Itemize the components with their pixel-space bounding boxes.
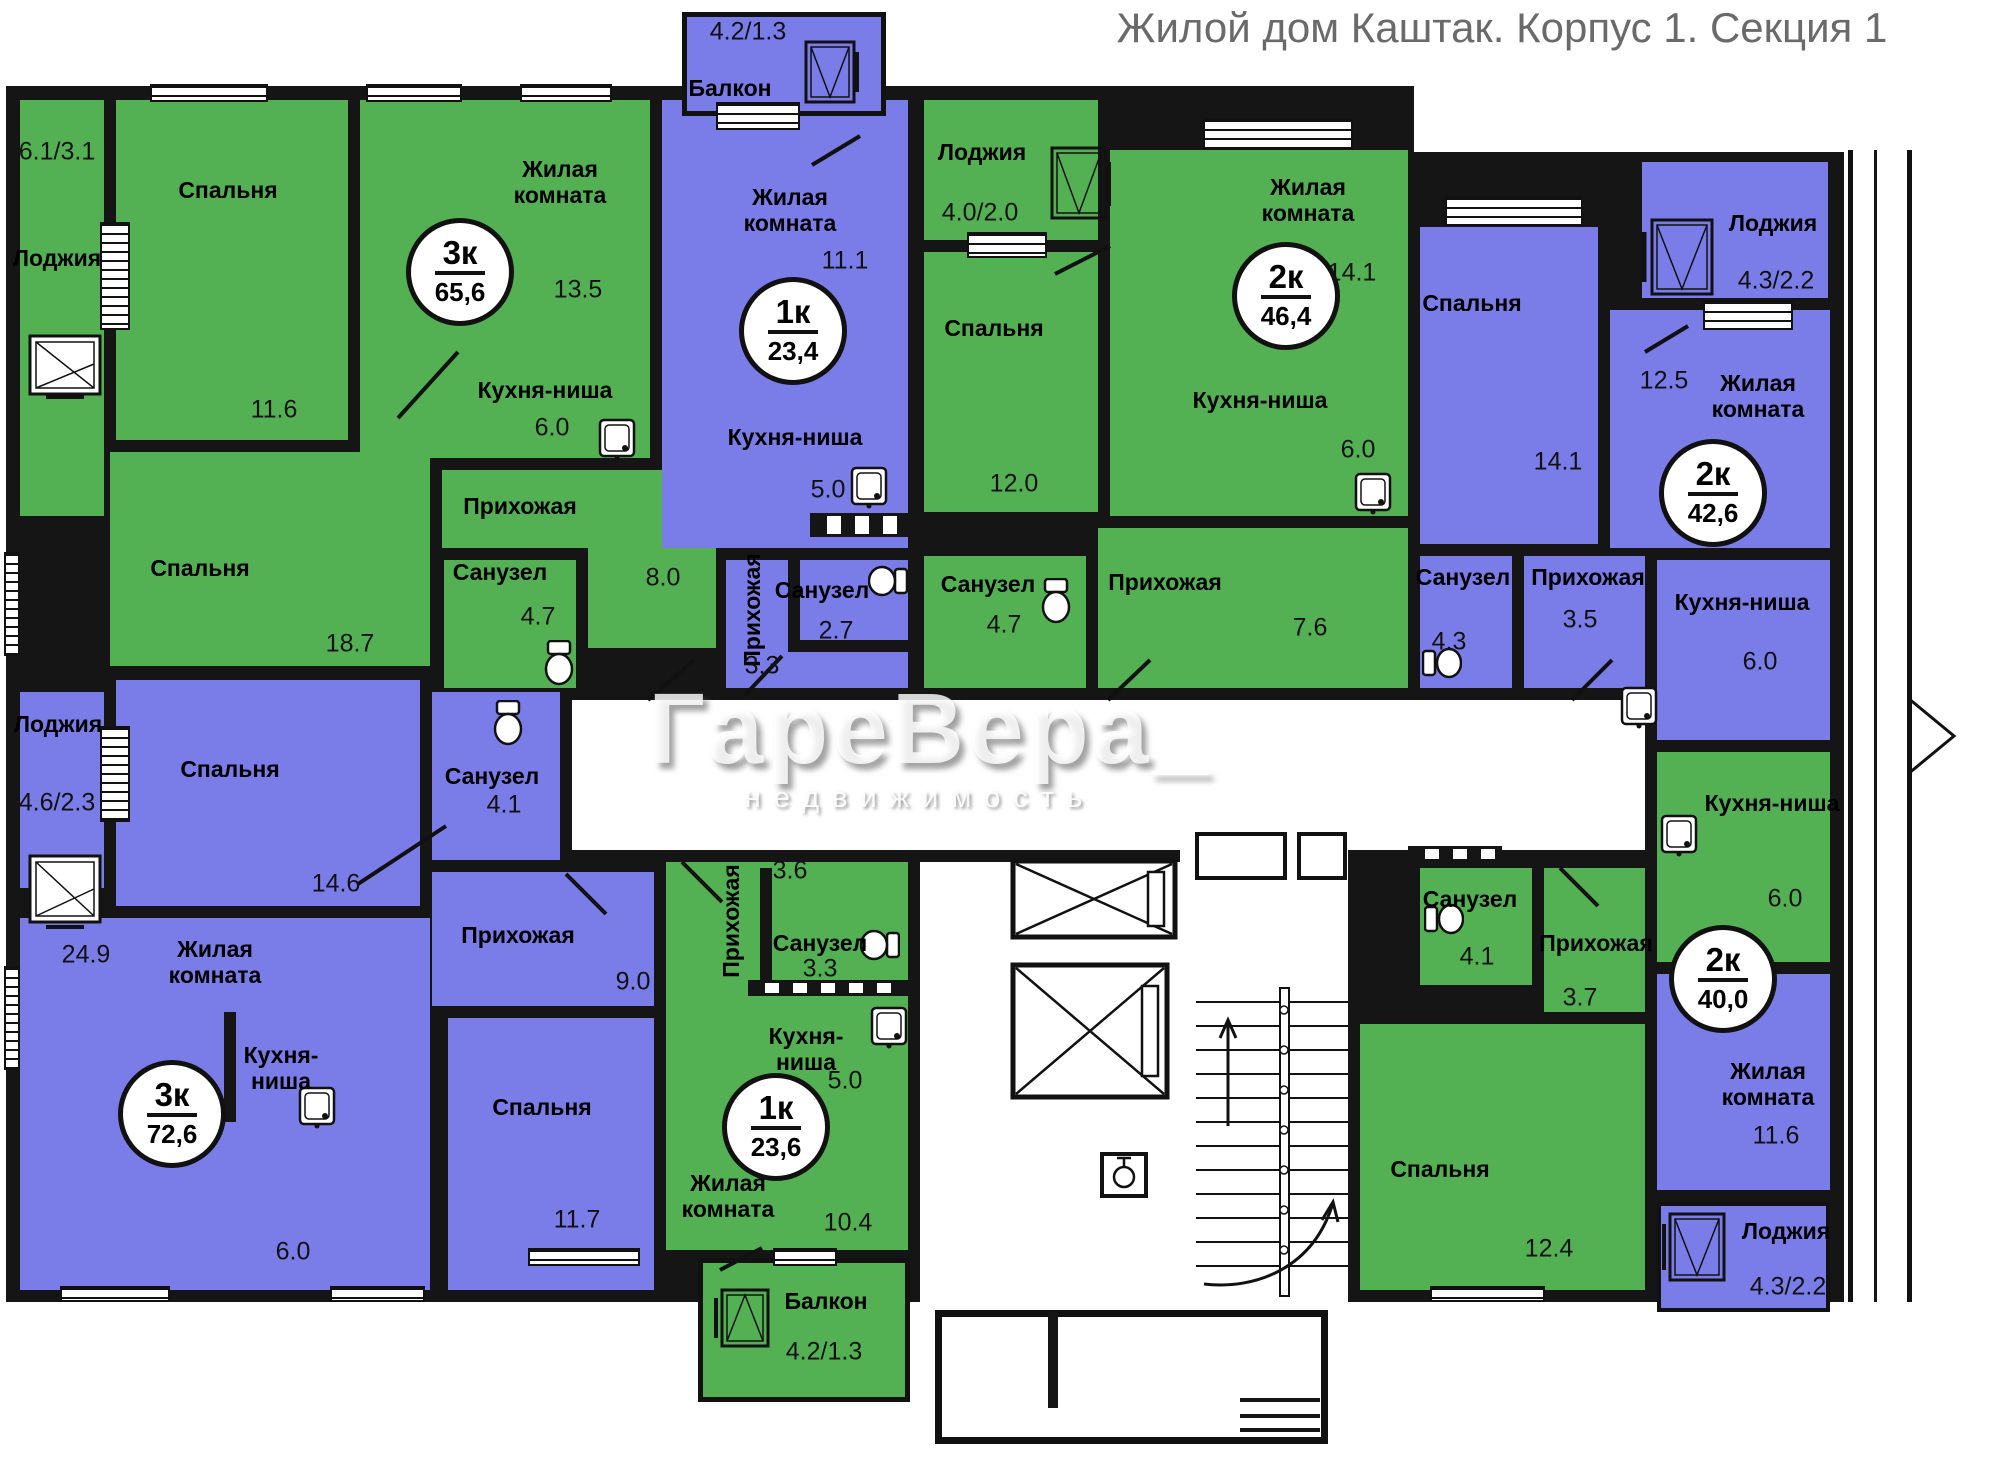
- plan-title: Жилой дом Каштак. Корпус 1. Секция 1: [1052, 4, 1952, 52]
- floor-plan: ГареВера_ недвижимость Лоджия6.1/3.1Спал…: [0, 0, 2000, 1479]
- watermark-subtitle: недвижимость: [690, 782, 1150, 815]
- watermark-brand: ГареВера_: [540, 672, 1320, 787]
